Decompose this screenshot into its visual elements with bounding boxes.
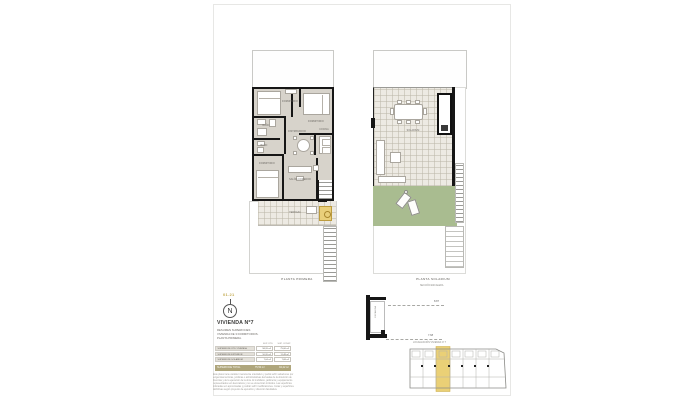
table-cell: 10,20 m²	[256, 352, 273, 357]
table-col-header: SUP. CONST.	[274, 343, 291, 345]
room-label: DORMITORIO	[259, 163, 275, 165]
section-room: ESCALERA	[370, 301, 385, 333]
room-label: SALÓN-COMEDOR	[289, 179, 311, 181]
washer-icon	[324, 211, 331, 218]
terrace-highlight-box	[319, 206, 332, 221]
table-col-header: SUP. ÚTIL	[257, 343, 273, 345]
chair	[293, 136, 297, 140]
section-step	[381, 330, 385, 338]
right-plan-lower-stairs	[445, 226, 464, 268]
table-row-label: SUPERFICIE EXTERIOR	[215, 352, 255, 357]
room-label: COCINA	[319, 129, 329, 131]
page-title: VIVIENDA Nº7	[217, 321, 254, 326]
outdoor-sofa	[376, 140, 385, 175]
interior-stairs	[318, 180, 332, 199]
room-label: TERRAZA	[289, 212, 300, 214]
dimension-value: 7.68	[428, 335, 433, 338]
left-plan-caption: PLANTA PRIMERA	[281, 278, 312, 281]
left-plan-exterior-stairs	[323, 226, 337, 282]
wall	[314, 135, 316, 155]
chair	[415, 120, 420, 124]
table-cell: 11,48 m²	[274, 352, 291, 357]
right-plan-roof-outline	[373, 50, 467, 89]
chair	[397, 100, 402, 104]
sofa	[288, 166, 312, 173]
outdoor-bench	[378, 176, 406, 183]
chair	[310, 136, 314, 140]
wall	[282, 156, 284, 200]
garden-table	[404, 190, 408, 194]
table-cell: 75,06 m²	[274, 346, 291, 351]
total-label: SUPERFICIE TOTAL	[217, 365, 240, 371]
sheet-code: 01.21	[223, 293, 235, 297]
room-label: BAÑO	[261, 145, 268, 147]
toilet	[269, 119, 276, 127]
room-label: BAÑO	[263, 125, 270, 127]
chair	[397, 120, 402, 124]
table-row-label: SUPERFICIE ÚTIL VIVIENDA	[215, 346, 255, 351]
left-plan-roof-outline	[252, 50, 334, 89]
room-label: SOLARIUM	[407, 130, 420, 132]
room-label: DORMITORIO	[282, 101, 298, 103]
wall	[299, 89, 301, 107]
ac-unit	[306, 206, 317, 214]
dimension-value: 8.87	[434, 301, 439, 304]
total-util: 75,50 m²	[255, 365, 265, 371]
section-vertical-label: ESCALERA	[375, 306, 377, 318]
right-plan-caption: PLANTA SOLARIUM	[416, 278, 450, 281]
wall	[254, 116, 284, 118]
armchair	[313, 165, 319, 171]
section-note: SECCIÓN ESCALERA	[420, 285, 443, 287]
section-slab-top	[366, 297, 386, 300]
chair	[423, 108, 427, 115]
toilet	[257, 147, 264, 153]
chair	[406, 120, 411, 124]
wall	[284, 116, 286, 154]
chair	[310, 151, 314, 155]
dimension-line	[388, 305, 444, 306]
chair	[390, 108, 394, 115]
total-const: 94,22 m²	[279, 365, 289, 371]
chair	[406, 100, 411, 104]
wardrobe	[285, 89, 297, 94]
shower	[257, 128, 267, 136]
key-plan-highlight-unit	[436, 347, 450, 392]
table-cell: 7,04 m²	[256, 357, 273, 362]
bed	[303, 93, 330, 115]
side-table	[390, 152, 401, 163]
north-compass-icon: N	[223, 304, 237, 318]
subtitle-line: PLANTA PRIMERA.	[217, 336, 242, 340]
table-cell: 7,68 m²	[274, 357, 291, 362]
chair	[415, 100, 420, 104]
dimension-line	[386, 339, 442, 340]
compass-letter: N	[227, 308, 232, 315]
dining-table	[297, 139, 310, 152]
bed	[256, 170, 279, 198]
key-plan-drawing	[406, 345, 508, 395]
chair	[293, 151, 297, 155]
key-plan-caption: LOCALIZACIÓN VIVIENDA Nº 7	[413, 342, 446, 344]
wall	[254, 154, 284, 156]
room-label: DORMITORIO	[308, 121, 324, 123]
kitchen-counter	[319, 136, 331, 154]
disclaimer-line: definitivas según proyecto de ejecución …	[213, 389, 277, 392]
table-cell: 58,26 m²	[256, 346, 273, 351]
table-row-label: SUPERFICIE SOLARIUM	[215, 357, 255, 362]
wall	[254, 138, 280, 140]
right-plan-side-stairs	[455, 163, 464, 223]
stair-bulkhead	[437, 93, 452, 135]
plan-sheet-page: DORMITORIO DORMITORIO BAÑO BAÑO DISTRIBU…	[0, 0, 700, 400]
wall	[371, 118, 375, 128]
outdoor-dining-table	[394, 104, 423, 120]
table-total-row: SUPERFICIE TOTAL 75,50 m² 94,22 m²	[215, 365, 291, 371]
bed	[257, 91, 281, 115]
room-label: DISTRIBUIDOR	[288, 131, 306, 133]
